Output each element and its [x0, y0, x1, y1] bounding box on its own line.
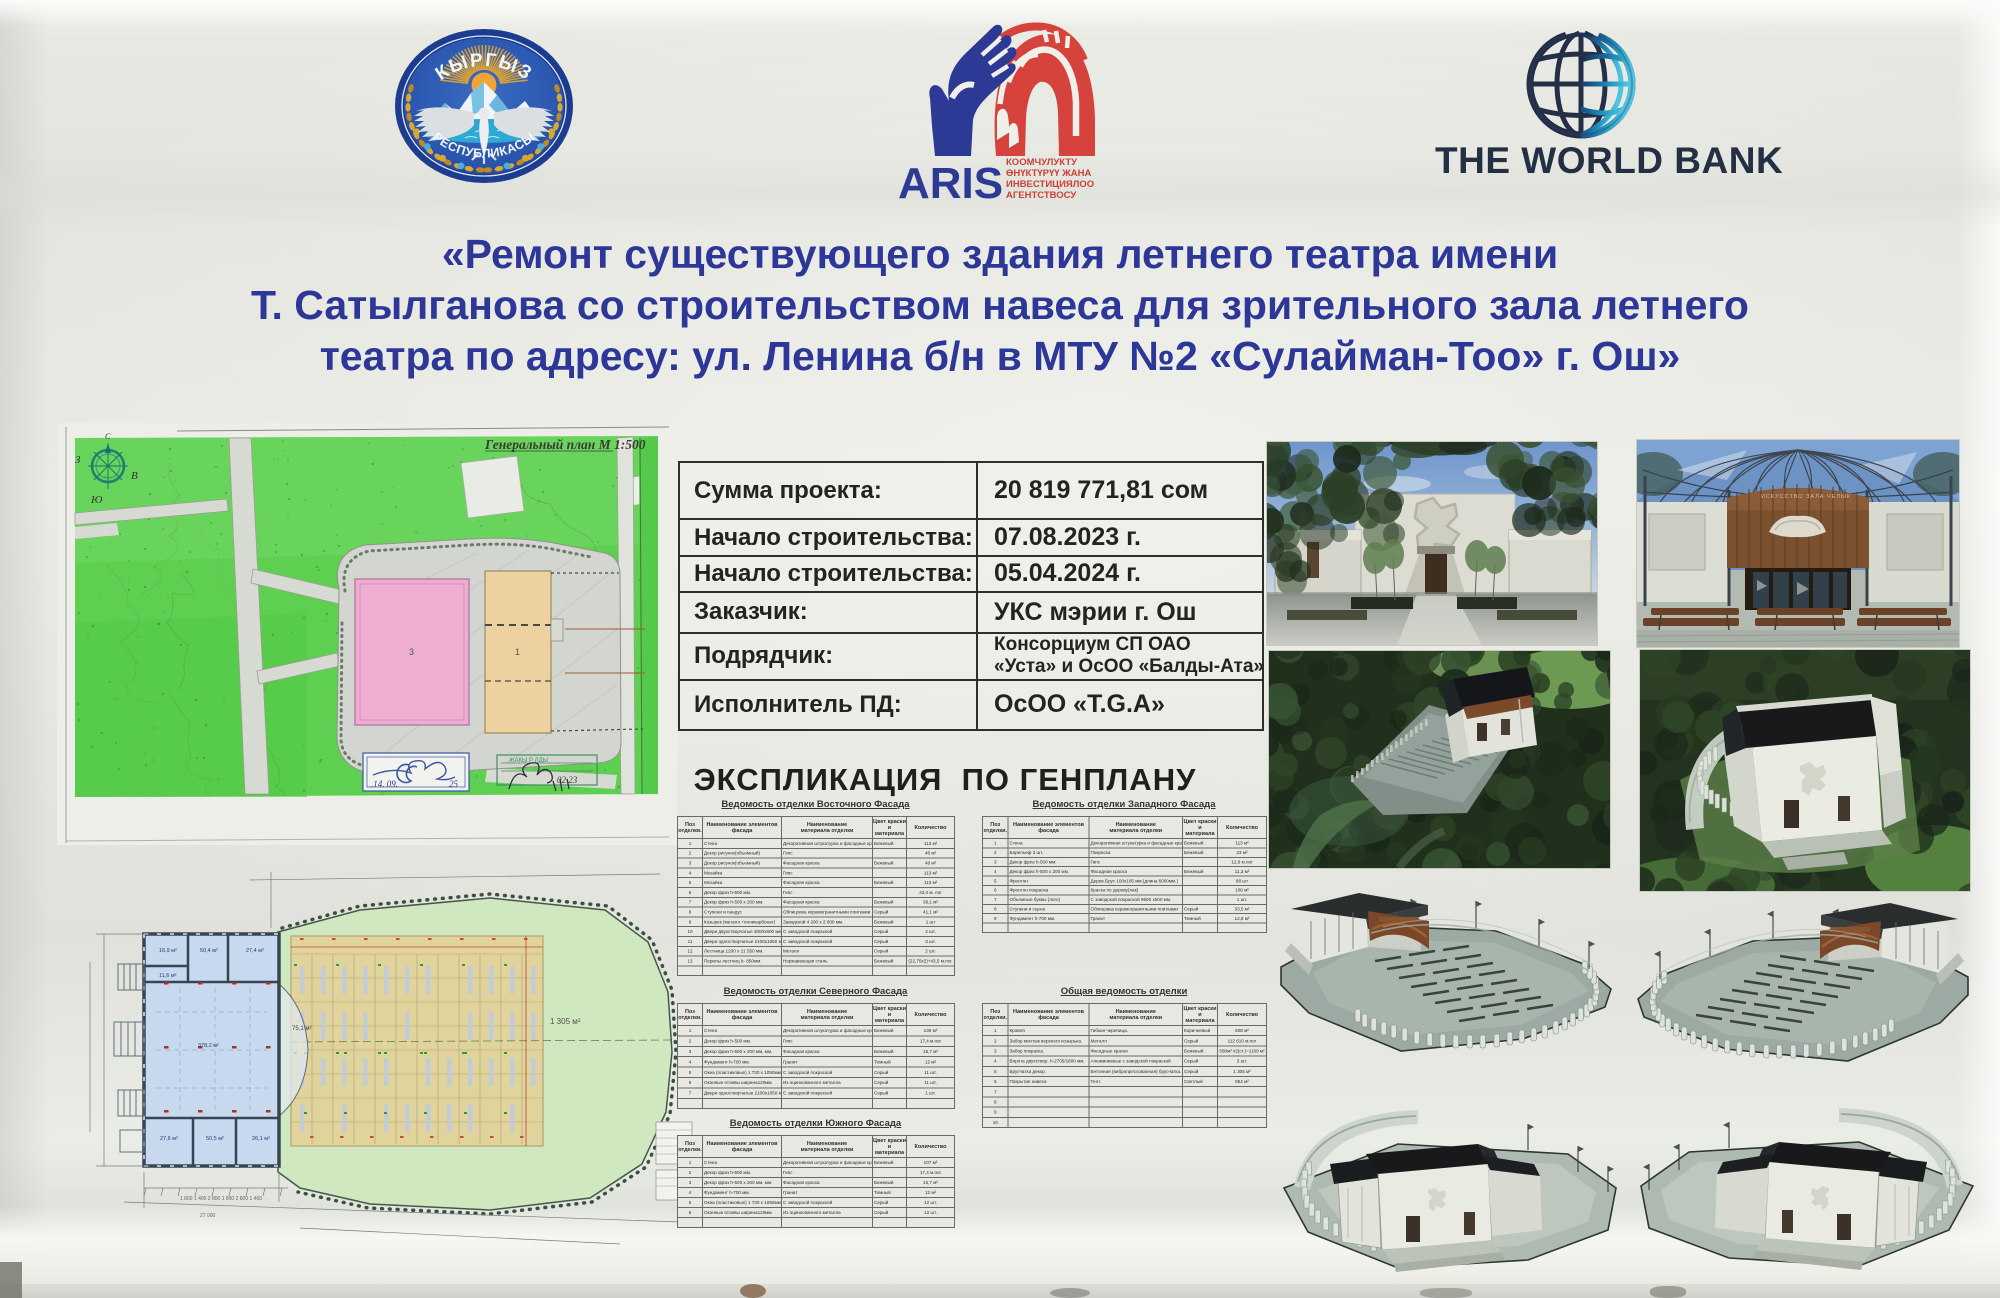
svg-text:75,1 м²: 75,1 м²: [292, 1026, 311, 1032]
svg-text:50,5 м²: 50,5 м²: [206, 1136, 224, 1142]
svg-text:16,9 м²: 16,9 м²: [159, 948, 177, 954]
svg-text:3: 3: [409, 647, 414, 657]
svg-text:З: З: [75, 454, 81, 466]
svg-text:ИСКУССТВО ЗАЛА ЧЕЛЫК: ИСКУССТВО ЗАЛА ЧЕЛЫК: [1761, 494, 1851, 500]
svg-text:THE WORLD BANK: THE WORLD BANK: [1435, 140, 1783, 181]
svg-text:27,6 м²: 27,6 м²: [160, 1136, 178, 1142]
svg-text:1 800 1 400 2 800 1 800: 1 800 1 400 2 800 1 800 2 800 1 400: [180, 1196, 262, 1202]
svg-text:26,1 м²: 26,1 м²: [252, 1136, 270, 1142]
svg-text:27 000: 27 000: [200, 1213, 216, 1219]
svg-text:378,2 м²: 378,2 м²: [198, 1043, 219, 1049]
svg-text:1 305 м²: 1 305 м²: [550, 1017, 581, 1026]
svg-text:ARIS: ARIS: [898, 159, 1003, 208]
svg-text:С: С: [105, 432, 111, 441]
svg-text:50,4 м²: 50,4 м²: [200, 948, 218, 954]
svg-text:В: В: [131, 470, 138, 482]
svg-text:АГЕНТСТВОСУ: АГЕНТСТВОСУ: [1006, 190, 1076, 201]
svg-text:Ю: Ю: [90, 494, 103, 506]
svg-text:1: 1: [515, 647, 520, 657]
svg-text:27,4 м²: 27,4 м²: [246, 948, 264, 954]
svg-text:Генеральный план М 1:500: Генеральный план М 1:500: [484, 437, 646, 452]
svg-text:КООМЧУЛУКТУ: КООМЧУЛУКТУ: [1006, 157, 1077, 168]
svg-text:ИНВЕСТИЦИЯЛОО: ИНВЕСТИЦИЯЛОО: [1006, 179, 1094, 190]
svg-text:ӨНҮКТҮРҮҮ ЖАНА: ӨНҮКТҮРҮҮ ЖАНА: [1006, 168, 1092, 179]
svg-text:11,6 м²: 11,6 м²: [159, 973, 177, 979]
